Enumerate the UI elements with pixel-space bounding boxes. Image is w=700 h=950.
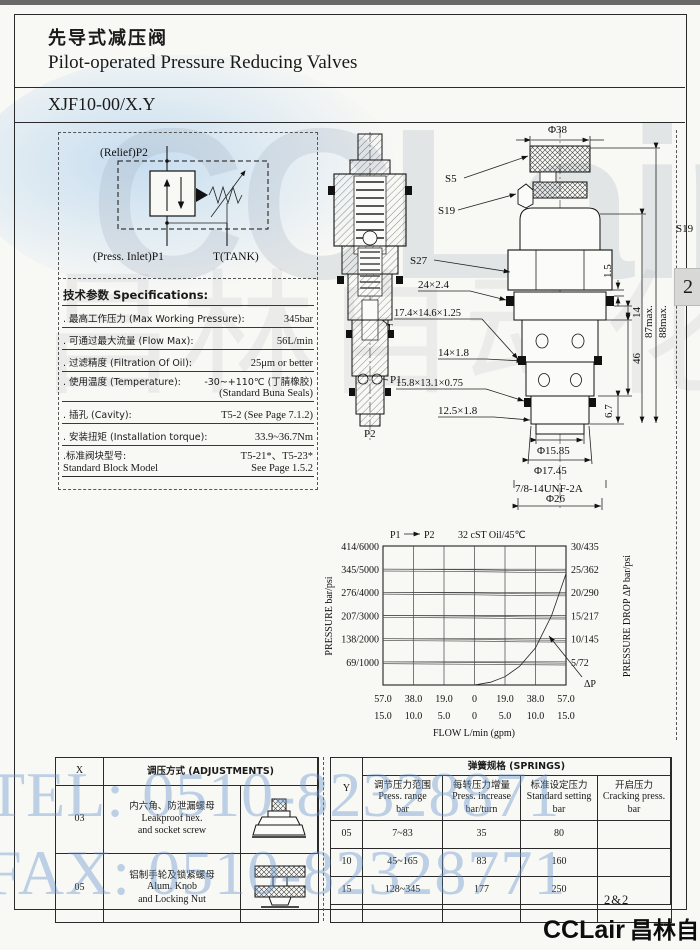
springs-title: 弹簧规格 (SPRINGS) [363, 758, 671, 776]
chart-title-p2: P2 [424, 530, 435, 541]
spec-row: . 安装扭矩 (Installation torque): 33.9~36.7N… [62, 424, 314, 446]
section-port-p2-label: P2 [364, 428, 376, 440]
svg-text:138/2000: 138/2000 [341, 635, 379, 646]
dim-46: 46 [631, 353, 643, 365]
svg-text:276/4000: 276/4000 [341, 588, 379, 599]
adjustments-title: 调压方式 (ADJUSTMENTS) [104, 758, 318, 786]
spring-row-increase: 177 [443, 877, 521, 905]
svg-text:10.0: 10.0 [527, 711, 545, 722]
specifications-table: 技术参数 Specifications: . 最高工作压力 (Max Worki… [62, 285, 314, 477]
right-axis-label: PRESSURE DROP ΔP bar/psi [622, 555, 633, 677]
spring-row-empty [363, 905, 443, 922]
dim-6-7: 6.7 [603, 404, 615, 418]
svg-text:207/3000: 207/3000 [341, 612, 379, 623]
svg-text:69/1000: 69/1000 [346, 658, 379, 669]
spring-row-setting: 250 [521, 877, 598, 905]
callout-oring-24: 24×2.4 [418, 279, 449, 291]
callout-seal-15: 15.8×13.1×0.75 [396, 378, 463, 389]
svg-text:5/72: 5/72 [571, 658, 589, 669]
spring-row-cracking [598, 821, 671, 849]
chart-title-oil: 32 cST Oil/45℃ [458, 530, 526, 541]
spring-row-y: 05 [331, 821, 363, 849]
x-axis-ticks-gpm: 15.0 10.0 5.0 0 5.0 10.0 15.0 [374, 711, 575, 722]
dim-phi26: Φ26 [546, 493, 566, 505]
svg-text:57.0: 57.0 [374, 694, 392, 705]
callout-s5: S5 [445, 173, 457, 185]
symbol-port-p2-label: (Relief)P2 [100, 147, 148, 159]
spring-row-y: 15 [331, 877, 363, 905]
svg-text:57.0: 57.0 [557, 694, 575, 705]
callout-seal-17: 17.4×14.6×1.25 [394, 308, 461, 319]
spring-row-increase: 35 [443, 821, 521, 849]
spec-row: . 插孔 (Cavity): T5-2 (See Page 7.1.2) [62, 402, 314, 424]
spring-row-setting: 160 [521, 849, 598, 877]
left-column-divider [58, 278, 316, 279]
adjustment-code: 05 [56, 854, 104, 922]
svg-text:25/362: 25/362 [571, 565, 599, 576]
svg-text:15.0: 15.0 [374, 711, 392, 722]
svg-text:19.0: 19.0 [435, 694, 453, 705]
springs-y-header: Y [331, 758, 363, 821]
footer-brand: CCLair 昌林自动化 [543, 911, 700, 950]
spring-row-y: 10 [331, 849, 363, 877]
svg-text:15.0: 15.0 [557, 711, 575, 722]
springs-col-header: 调节压力范围 Press. range bar [363, 776, 443, 821]
right-axis-ticks: 30/435 25/362 20/290 15/217 10/145 5/72 [571, 542, 599, 669]
x-axis-label: FLOW L/min (gpm) [433, 728, 515, 739]
footer-brand-cn: 昌林自动化 [630, 911, 700, 950]
callout-seal-14: 14×1.8 [438, 347, 469, 359]
svg-text:414/6000: 414/6000 [341, 542, 379, 553]
spring-row-range: 7~83 [363, 821, 443, 849]
spec-row: .标准阀块型号: T5-21*、T5-23* Standard Block Mo… [62, 446, 314, 477]
spring-row-empty [331, 905, 363, 922]
svg-text:38.0: 38.0 [405, 694, 423, 705]
spring-row-cracking [598, 849, 671, 877]
hex-socket-screw-icon [241, 786, 318, 854]
spring-row-range: 128~345 [363, 877, 443, 905]
footer-brand-en: CCLair [543, 916, 625, 945]
chart-title-p1: P1 [390, 530, 401, 541]
svg-text:0: 0 [472, 694, 477, 705]
dim-phi15-85: Φ15.85 [537, 445, 570, 457]
hydraulic-symbol: (Relief)P2 (Press. Inlet)P1 T(TANK) [55, 133, 320, 273]
dim-88max: 88max. [657, 305, 669, 338]
adjustments-table: X 调压方式 (ADJUSTMENTS) 03 内六角、防泄漏螺母 Leakpr… [55, 757, 319, 923]
left-axis-label: PRESSURE bar/psi [324, 576, 335, 655]
adjustment-desc: 内六角、防泄漏螺母 Leakproof hex. and socket scre… [104, 786, 241, 854]
alum-knob-icon [241, 854, 318, 922]
page-title-chinese: 先导式减压阀 [48, 24, 168, 50]
dim-phi38: Φ38 [548, 124, 568, 136]
adjustments-x-header: X [56, 758, 104, 786]
dim-s19-right: S19 [676, 223, 694, 235]
spec-row: . 可通过最大流量 (Flow Max): 56L/min [62, 328, 314, 350]
svg-text:30/435: 30/435 [571, 542, 599, 553]
springs-col-header: 标准设定压力 Standard setting bar [521, 776, 598, 821]
svg-text:10.0: 10.0 [405, 711, 423, 722]
spec-row: . 使用温度 (Temperature): -30~+110℃ (丁腈橡胶) (… [62, 372, 314, 402]
datasheet-page: CCLair 昌林自动化 先导式减压阀 Pilot-operated Press… [0, 0, 700, 950]
dp-annotation: ΔP [584, 679, 596, 690]
bottom-tables-divider [323, 757, 324, 921]
adjustment-code: 03 [56, 786, 104, 854]
valve-outline-drawing: Φ38 S5 S19 S27 24×2.4 17.4×14.6×1.25 14×… [390, 120, 700, 520]
scan-top-edge [0, 0, 700, 5]
spring-row-increase: 83 [443, 849, 521, 877]
svg-text:20/290: 20/290 [571, 588, 599, 599]
svg-text:5.0: 5.0 [438, 711, 451, 722]
springs-col-header: 每转压力增量 Press. increase bar/turn [443, 776, 521, 821]
performance-chart: P1 P2 32 cST Oil/45℃ 414/6000 345/5000 2… [320, 525, 660, 743]
specs-title: 技术参数 Specifications: [62, 285, 314, 306]
adjustment-desc: 铝制手轮及锁紧螺母 Alum. Knob and Locking Nut [104, 854, 241, 922]
spring-row-range: 45~165 [363, 849, 443, 877]
spec-row: . 最高工作压力 (Max Working Pressure): 345bar [62, 306, 314, 328]
dim-1-5: 1.5 [602, 264, 614, 278]
callout-seal-12: 12.5×1.8 [438, 405, 478, 417]
model-number: XJF10-00/X.Y [48, 94, 156, 115]
springs-col-header: 开启压力 Cracking press. bar [598, 776, 671, 821]
spring-row-empty [443, 905, 521, 922]
page-title-english: Pilot-operated Pressure Reducing Valves [48, 52, 357, 74]
svg-text:10/145: 10/145 [571, 635, 599, 646]
symbol-port-p1-label: (Press. Inlet)P1 [93, 251, 164, 263]
dim-14: 14 [631, 307, 643, 319]
svg-text:38.0: 38.0 [527, 694, 545, 705]
svg-text:15/217: 15/217 [571, 612, 599, 623]
header-divider [14, 87, 685, 88]
dim-87max: 87max. [643, 305, 655, 338]
svg-text:0: 0 [472, 711, 477, 722]
svg-text:5.0: 5.0 [499, 711, 512, 722]
spec-row: . 过滤精度 (Filtration Of Oil): 25μm or bett… [62, 350, 314, 372]
spring-row-setting: 80 [521, 821, 598, 849]
dim-phi17-45: Φ17.45 [534, 465, 567, 477]
left-axis-ticks: 414/6000 345/5000 276/4000 207/3000 138/… [341, 542, 379, 669]
svg-text:345/5000: 345/5000 [341, 565, 379, 576]
svg-text:19.0: 19.0 [496, 694, 514, 705]
x-axis-ticks-lmin: 57.0 38.0 19.0 0 19.0 38.0 57.0 [374, 694, 575, 705]
callout-s19: S19 [438, 205, 456, 217]
page-number: 2&2 [604, 893, 629, 908]
dp-curve [475, 574, 567, 685]
callout-s27: S27 [410, 255, 428, 267]
symbol-port-t-label: T(TANK) [213, 251, 259, 263]
